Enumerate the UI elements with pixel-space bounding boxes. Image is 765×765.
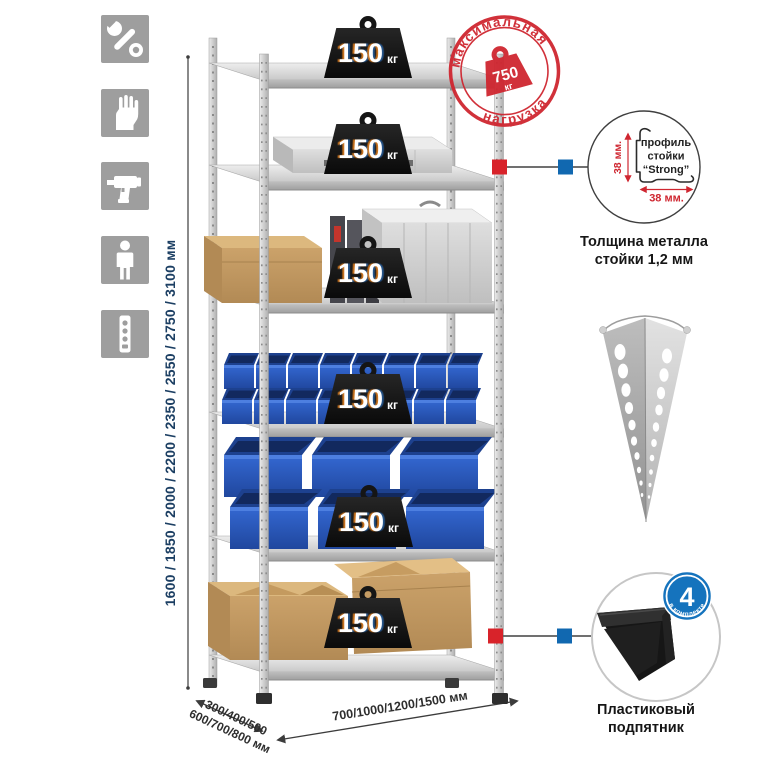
load-unit: кг	[387, 398, 398, 412]
power-strip-icon	[101, 310, 149, 358]
svg-text:нагрузка: нагрузка	[478, 92, 554, 135]
load-value: 150	[339, 509, 384, 536]
weight-icon: 150 кг	[324, 124, 412, 174]
marker-blue-square-top	[558, 160, 573, 175]
shelf-load-badge-3: 150 кг	[324, 248, 412, 298]
marker-blue-square-bottom	[557, 629, 572, 644]
foot-detail-circle: 4 в комплекте	[592, 572, 720, 702]
load-value: 150	[338, 386, 383, 413]
weight-icon: 150 кг	[324, 28, 412, 78]
shelf-load-badge-1: 150 кг	[324, 28, 412, 78]
marker-red-square-bottom	[488, 629, 503, 644]
weight-icon: 150 кг	[325, 497, 413, 547]
load-unit: кг	[387, 622, 398, 636]
profile-dim-vertical: 38 мм.	[612, 141, 624, 174]
weight-icon: 150 кг	[324, 374, 412, 424]
wrench-icon	[101, 15, 149, 63]
foot-caption: Пластиковый подпятник	[566, 702, 726, 737]
load-unit: кг	[387, 272, 398, 286]
person-icon	[101, 236, 149, 284]
profile-label-line1: профиль	[641, 137, 691, 149]
profile-caption-line2: стойки 1,2 мм	[564, 252, 724, 270]
load-value: 150	[338, 610, 383, 637]
profile-caption: Толщина металла стойки 1,2 мм	[564, 234, 724, 269]
profile-label-line3: “Strong”	[643, 164, 689, 176]
height-dimension-line	[186, 55, 190, 690]
shelf-load-badge-4: 150 кг	[324, 374, 412, 424]
profile-callout-marker	[492, 160, 590, 175]
load-value: 150	[338, 136, 383, 163]
load-value: 150	[338, 260, 383, 287]
height-dimension-label: 1600 / 1850 / 2000 / 2200 / 2350 / 2550 …	[162, 185, 180, 661]
foot-caption-line2: подпятник	[566, 720, 726, 738]
profile-caption-line1: Толщина металла	[564, 234, 724, 252]
weight-icon: 150 кг	[324, 598, 412, 648]
load-unit: кг	[388, 521, 399, 535]
stamp-arc-bottom-text: нагрузка	[478, 92, 554, 135]
corner-post-image	[600, 316, 691, 522]
gloves-icon	[101, 89, 149, 137]
profile-detail-circle: 38 мм. 38 мм. профиль стойки “Strong”	[588, 111, 700, 223]
profile-dim-horizontal: 38 мм.	[649, 193, 684, 205]
weight-icon: 150 кг	[324, 248, 412, 298]
shelf-load-badge-6: 150 кг	[324, 598, 412, 648]
foot-caption-line1: Пластиковый	[566, 702, 726, 720]
marker-red-square-top	[492, 160, 507, 175]
profile-label-line2: стойки	[647, 151, 684, 163]
load-unit: кг	[387, 148, 398, 162]
load-value: 150	[338, 40, 383, 67]
product-infographic: максимальная нагрузка 750 кг 38 мм. 38 м…	[0, 0, 765, 765]
shelf-load-badge-2: 150 кг	[324, 124, 412, 174]
quantity-badge: 4 в комплекте	[663, 572, 712, 621]
load-unit: кг	[387, 52, 398, 66]
foot-callout-marker	[488, 629, 596, 644]
shelf-load-badge-5: 150 кг	[325, 497, 413, 547]
drill-icon	[101, 162, 149, 210]
stamp-weight-icon: 750 кг	[475, 43, 533, 98]
badge-value: 4	[679, 582, 694, 612]
